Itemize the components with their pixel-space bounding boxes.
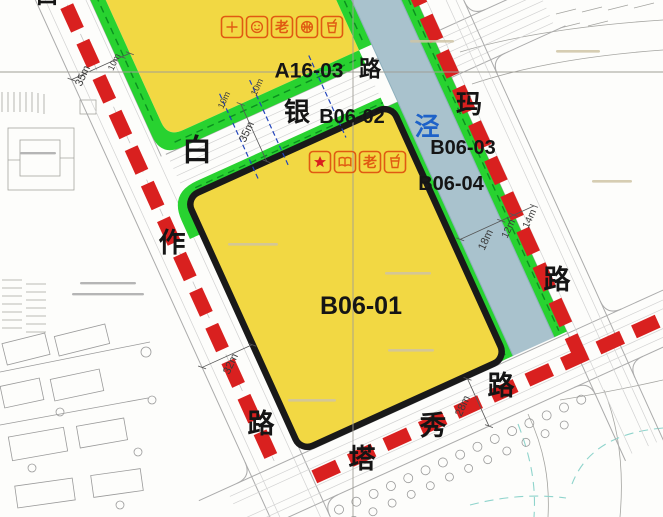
- label-b06-04: B06-04: [418, 173, 484, 195]
- redline-dash: [596, 331, 625, 354]
- building-topleft: [8, 100, 96, 190]
- char-zuo: 作: [159, 228, 186, 258]
- redline-dash: [631, 315, 660, 338]
- char-lu-top: 路: [359, 57, 382, 82]
- redline-dash: [93, 74, 116, 103]
- label-a16-03: A16-03: [275, 60, 344, 83]
- char-yin: 银: [284, 97, 311, 127]
- char-lu-bottom: 路: [488, 370, 516, 401]
- char-lu-right: 路: [544, 264, 572, 295]
- char-ta: 塔: [349, 444, 377, 474]
- redline-dash: [205, 323, 228, 352]
- residential-buildings: [0, 324, 156, 509]
- redline-dash: [76, 39, 99, 68]
- label-b06-01: B06-01: [320, 292, 402, 320]
- map-canvas: 白白银A16-03路B06-02玛泾B06-03B06-04B06-01作路塔秀…: [0, 0, 663, 517]
- redline-dash: [125, 145, 148, 174]
- redline-dash: [109, 110, 132, 139]
- redline-dash: [60, 3, 83, 32]
- char-ma: 玛: [456, 89, 482, 119]
- redline-dash: [382, 428, 411, 451]
- svg-text:老: 老: [275, 19, 289, 35]
- redline-dash: [189, 287, 212, 316]
- redline-dash: [141, 181, 164, 210]
- redline-dash: [525, 363, 554, 386]
- parking-ticks-midleft: [2, 280, 46, 332]
- label-b06-02: B06-02: [319, 106, 385, 128]
- dim-14m: 14m: [521, 208, 539, 230]
- parking-ticks-topleft: [2, 92, 44, 114]
- char-bai-partial: 白: [35, 0, 59, 9]
- char-bai: 白: [182, 135, 212, 168]
- svg-text:老: 老: [363, 154, 377, 170]
- char-lu-left: 路: [248, 408, 276, 439]
- char-xiu: 秀: [419, 411, 447, 441]
- planning-map: 白白银A16-03路B06-02玛泾B06-03B06-04B06-01作路塔秀…: [0, 0, 663, 517]
- annotation-marks-gray: [20, 152, 144, 295]
- label-b06-03: B06-03: [430, 137, 496, 159]
- redline-dash: [311, 460, 340, 483]
